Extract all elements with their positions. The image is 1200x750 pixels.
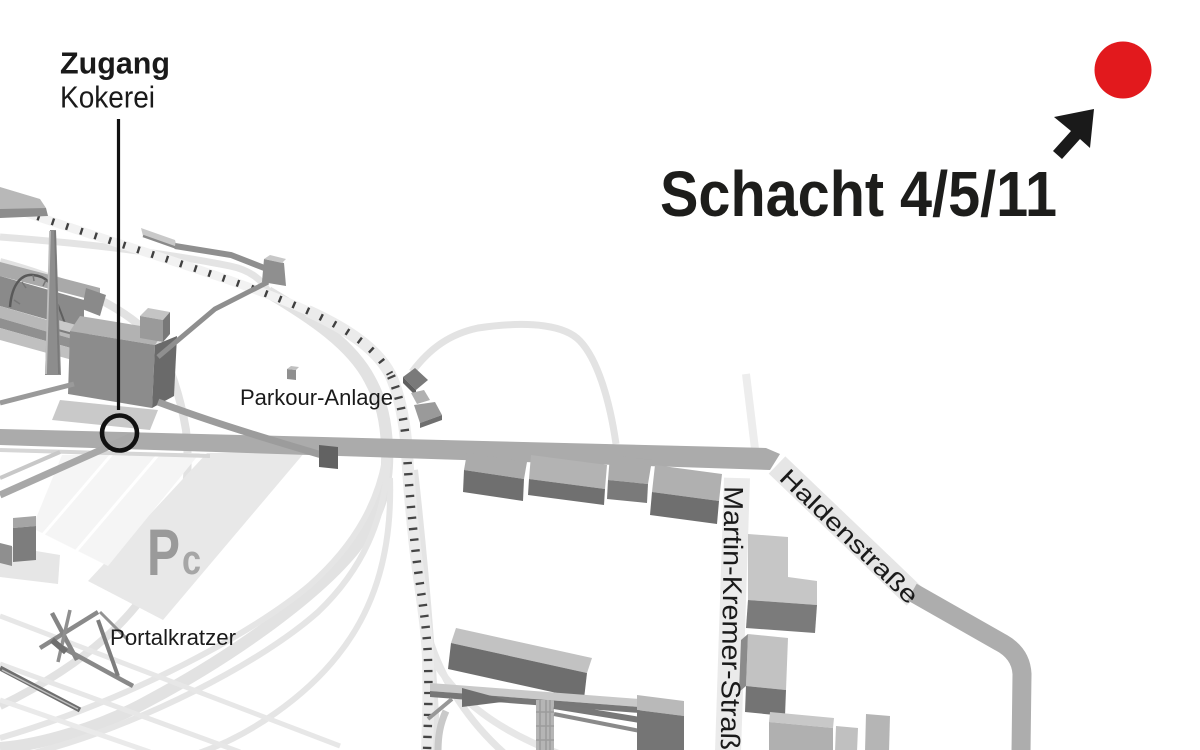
svg-text:Zugang: Zugang <box>60 46 170 81</box>
svg-text:c: c <box>182 536 201 583</box>
svg-text:P: P <box>147 515 180 589</box>
svg-text:Kokerei: Kokerei <box>60 80 155 115</box>
svg-text:Parkour-Anlage: Parkour-Anlage <box>240 385 393 410</box>
svg-text:Martin-Kremer-Straß: Martin-Kremer-Straß <box>715 486 749 750</box>
svg-text:Schacht 4/5/11: Schacht 4/5/11 <box>660 158 1057 230</box>
svg-text:Portalkratzer: Portalkratzer <box>110 625 236 650</box>
